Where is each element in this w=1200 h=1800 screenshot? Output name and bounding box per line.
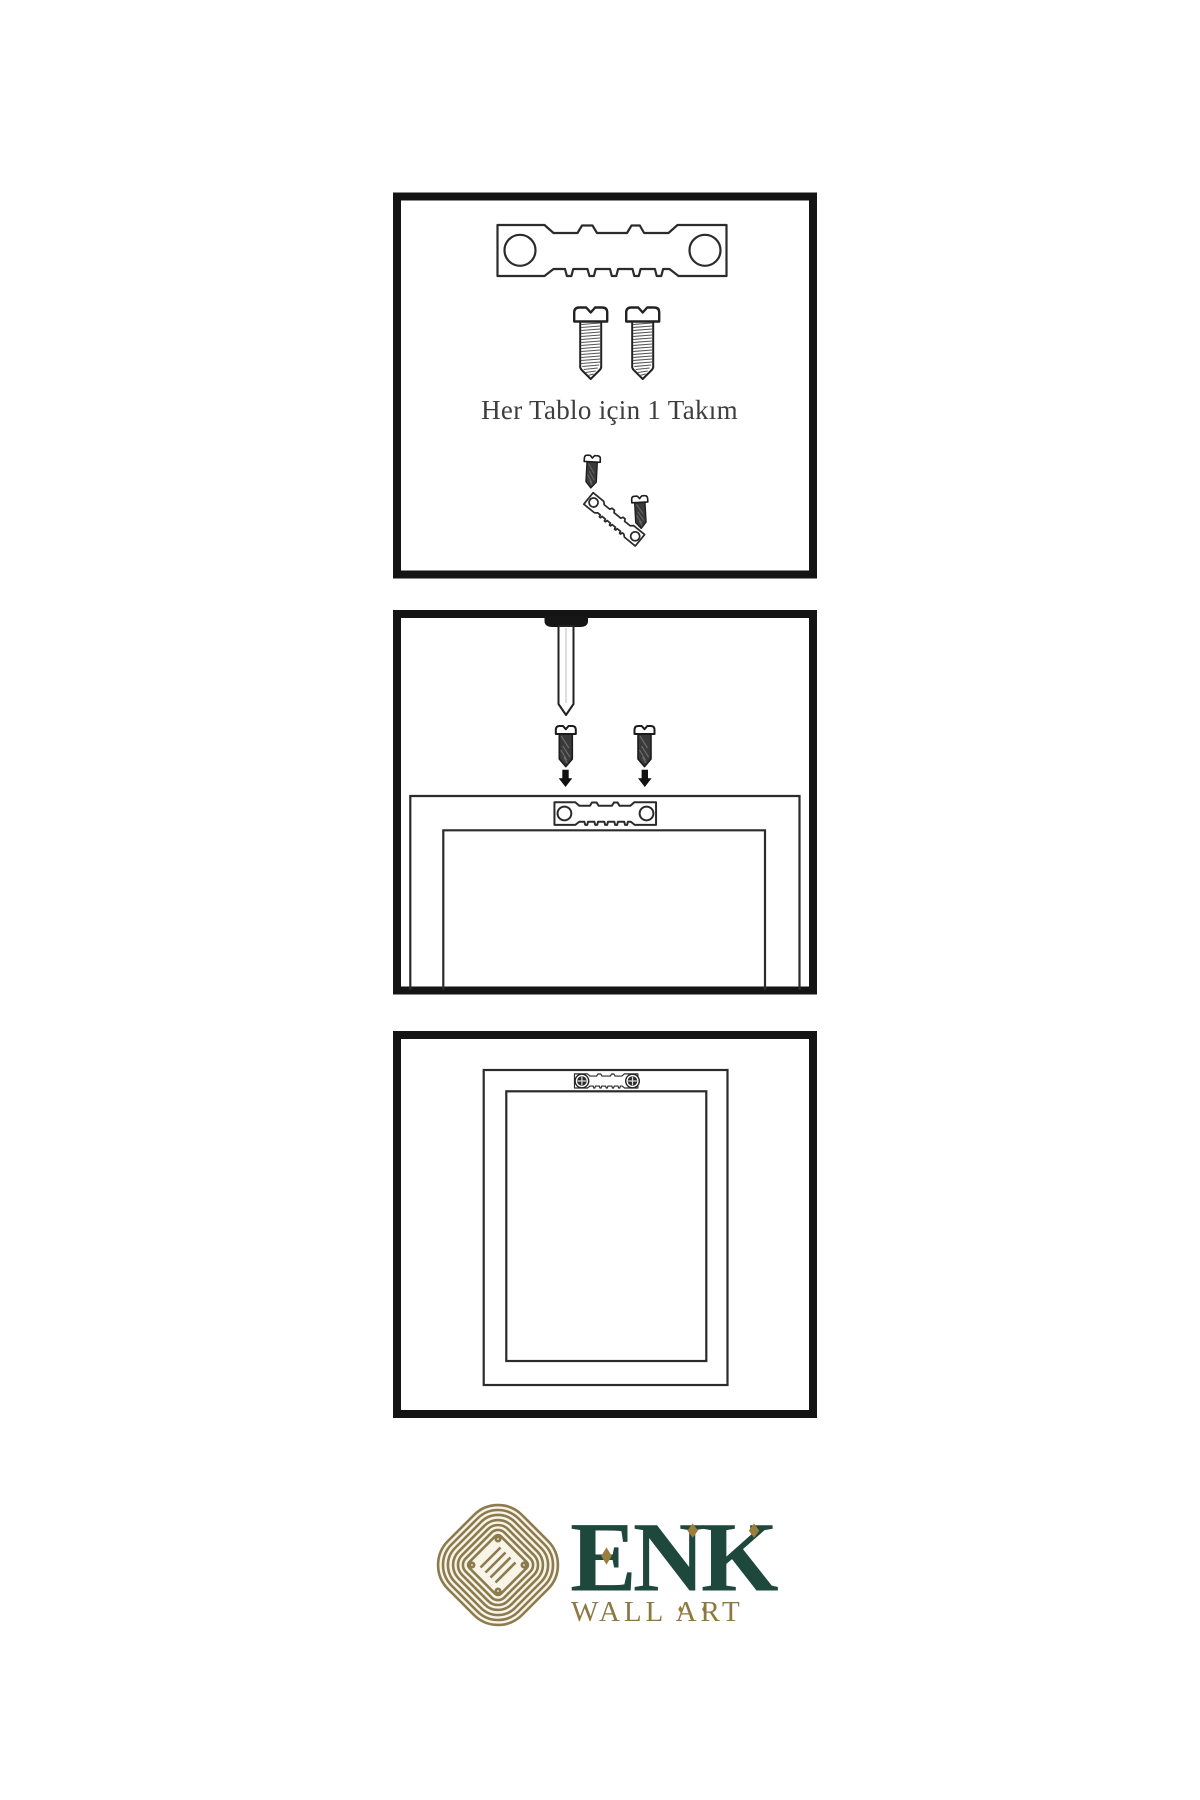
svg-text:Her Tablo için 1 Takım: Her Tablo için 1 Takım	[481, 395, 738, 425]
svg-text:WALL ART: WALL ART	[571, 1596, 744, 1628]
